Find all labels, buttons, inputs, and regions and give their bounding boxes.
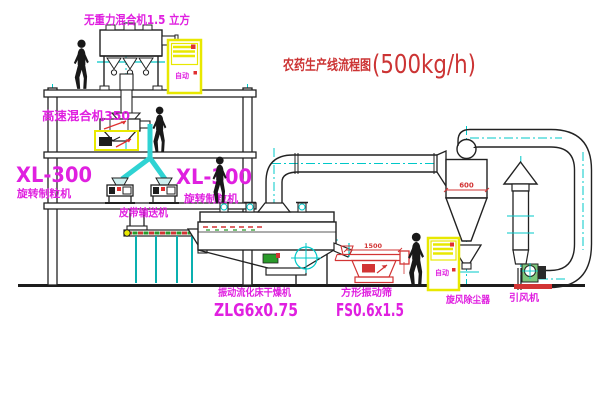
label-cyclone: 旋风除尘器 <box>445 294 490 306</box>
label-dryer-name: 振动流化床干燥机 <box>218 286 291 299</box>
process-flow-diagram: 自动 <box>0 0 600 403</box>
cabinet-2-label: 自动 <box>435 268 449 277</box>
label-granulator-mid-name: 旋转制粒机 <box>183 192 239 205</box>
cyclone-diameter-dim: 600 <box>459 182 474 190</box>
granulator-unit-1 <box>105 178 135 203</box>
gravity-mixer <box>97 23 178 114</box>
label-sieve-model: FS0.6x1.5 <box>336 300 404 321</box>
page-title: 农药生产线流程图 <box>282 57 371 74</box>
label-belt-conveyor: 皮带输送机 <box>118 206 168 219</box>
dryer-motor <box>263 254 278 263</box>
label-granulator-left-model: XL-300 <box>16 163 92 188</box>
label-fan: 引风机 <box>509 292 540 304</box>
control-cabinet-2: 自动 <box>428 238 459 290</box>
fan-base <box>514 284 552 289</box>
person-2 <box>153 107 167 152</box>
label-granulator-left-name: 旋转制粒机 <box>16 187 72 200</box>
granulator-unit-2 <box>149 178 179 203</box>
exhaust-duct <box>258 151 446 212</box>
page-title-capacity: (500kg/h) <box>372 50 476 80</box>
label-sieve-name: 方形振动筛 <box>341 286 392 299</box>
exhaust-stack <box>504 162 537 264</box>
person-1 <box>74 40 89 89</box>
control-cabinet-1: 自动 <box>168 40 201 93</box>
person-4 <box>408 233 424 285</box>
cabinet-1-label: 自动 <box>175 71 189 80</box>
fluid-bed-dryer <box>198 203 352 286</box>
sieve-length-dim: 1500 <box>364 242 383 250</box>
cabinet-indicator-light <box>450 243 454 247</box>
label-gravity-mixer: 无重力混合机1.5 立方 <box>83 12 190 27</box>
label-high-speed-mixer: 高速混合机350 <box>42 108 130 123</box>
label-dryer-model: ZLG6x0.75 <box>214 300 298 321</box>
flow-diagram-canvas: 自动 <box>0 0 600 403</box>
sieve-motor <box>362 264 375 273</box>
cabinet-indicator-light <box>191 45 196 50</box>
induced-draft-fan <box>514 263 552 289</box>
